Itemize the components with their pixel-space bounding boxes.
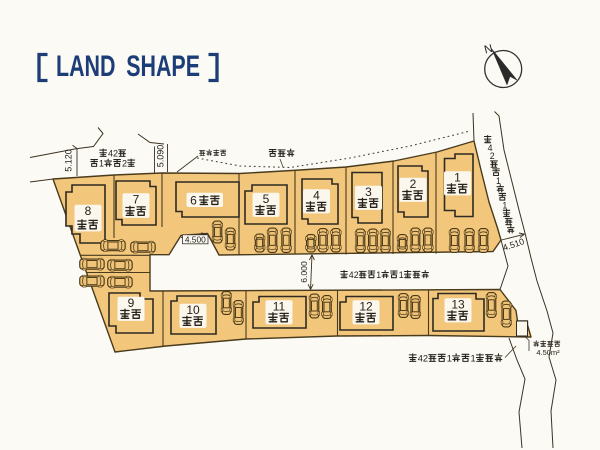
svg-text:9: 9 bbox=[128, 296, 135, 310]
svg-text:2: 2 bbox=[490, 151, 495, 161]
svg-text:2: 2 bbox=[410, 177, 417, 191]
svg-text:1: 1 bbox=[454, 171, 461, 185]
svg-text:4.50m²: 4.50m² bbox=[536, 348, 560, 357]
svg-text:1: 1 bbox=[447, 354, 452, 364]
svg-text:2: 2 bbox=[354, 270, 359, 280]
svg-text:3: 3 bbox=[365, 185, 372, 199]
svg-text:4.500: 4.500 bbox=[185, 234, 206, 244]
svg-text:1: 1 bbox=[376, 270, 381, 280]
svg-text:1: 1 bbox=[399, 270, 404, 280]
svg-text:7: 7 bbox=[133, 193, 140, 207]
svg-text:13: 13 bbox=[451, 298, 465, 312]
svg-text:6: 6 bbox=[190, 194, 197, 208]
svg-text:2: 2 bbox=[423, 354, 428, 364]
svg-text:4: 4 bbox=[313, 189, 320, 203]
svg-text:LAND SHAPE: LAND SHAPE bbox=[56, 50, 200, 83]
svg-text:1: 1 bbox=[99, 159, 104, 169]
svg-text:12: 12 bbox=[359, 300, 373, 314]
svg-text:2: 2 bbox=[113, 149, 118, 159]
svg-text:1: 1 bbox=[470, 354, 475, 364]
svg-text:2: 2 bbox=[122, 159, 127, 169]
svg-text:8: 8 bbox=[85, 204, 92, 218]
svg-text:5.090: 5.090 bbox=[156, 145, 166, 168]
svg-text:11: 11 bbox=[273, 300, 286, 314]
svg-text:5.120: 5.120 bbox=[64, 149, 74, 172]
svg-text:6.000: 6.000 bbox=[299, 261, 309, 283]
svg-text:10: 10 bbox=[186, 303, 200, 317]
svg-text:5: 5 bbox=[263, 192, 270, 206]
